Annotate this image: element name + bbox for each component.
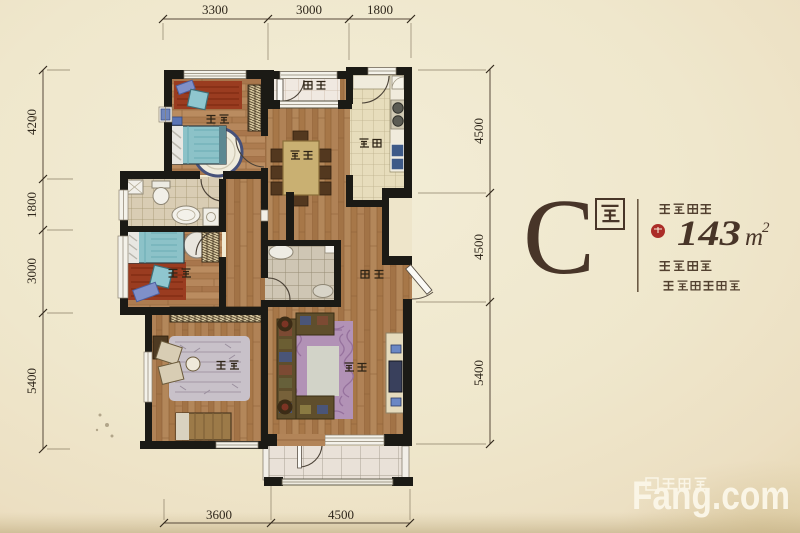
- svg-text:3600: 3600: [206, 507, 232, 522]
- svg-text:4500: 4500: [328, 507, 354, 522]
- svg-text:1800: 1800: [24, 192, 39, 218]
- svg-text:5400: 5400: [471, 360, 486, 386]
- svg-text:143: 143: [677, 213, 741, 253]
- svg-text:3000: 3000: [296, 2, 322, 17]
- svg-text:5400: 5400: [24, 368, 39, 394]
- svg-text:2: 2: [762, 220, 770, 236]
- svg-text:C: C: [523, 178, 595, 297]
- svg-text:4500: 4500: [471, 234, 486, 260]
- svg-text:4200: 4200: [24, 109, 39, 135]
- svg-text:3300: 3300: [202, 2, 228, 17]
- svg-text:1800: 1800: [367, 2, 393, 17]
- svg-text:4500: 4500: [471, 118, 486, 144]
- svg-text:Fang.com: Fang.com: [632, 474, 790, 518]
- svg-text:m: m: [745, 224, 763, 251]
- svg-text:3000: 3000: [24, 258, 39, 284]
